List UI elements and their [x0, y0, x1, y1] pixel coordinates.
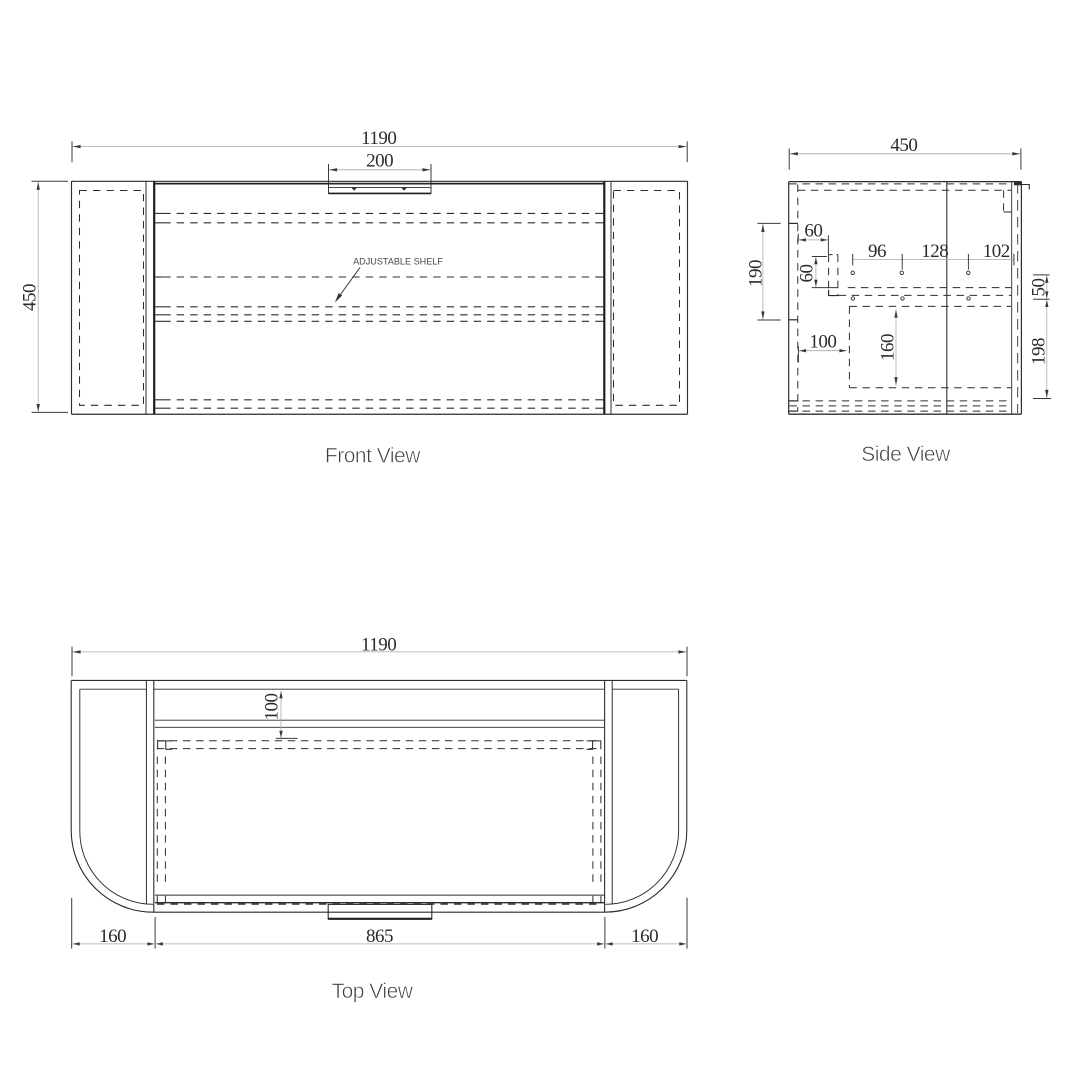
svg-text:450: 450: [19, 284, 40, 311]
svg-text:50: 50: [1028, 279, 1049, 297]
svg-text:Top View: Top View: [332, 980, 414, 1003]
svg-text:450: 450: [890, 135, 917, 156]
svg-text:102: 102: [983, 241, 1010, 262]
svg-text:ADJUSTABLE SHELF: ADJUSTABLE SHELF: [353, 257, 443, 267]
svg-text:Front View: Front View: [325, 444, 421, 467]
svg-text:128: 128: [921, 241, 948, 262]
svg-text:200: 200: [366, 150, 393, 171]
svg-text:160: 160: [631, 926, 658, 947]
svg-text:100: 100: [262, 694, 283, 721]
svg-text:160: 160: [878, 334, 899, 361]
svg-text:60: 60: [804, 221, 822, 242]
svg-text:Side View: Side View: [861, 443, 951, 466]
svg-text:1190: 1190: [361, 128, 396, 149]
svg-text:190: 190: [745, 260, 766, 287]
svg-text:865: 865: [366, 926, 393, 947]
svg-text:96: 96: [868, 241, 886, 262]
svg-text:100: 100: [809, 332, 836, 353]
svg-text:198: 198: [1029, 338, 1050, 365]
svg-text:1190: 1190: [361, 634, 396, 655]
svg-text:60: 60: [797, 265, 818, 283]
svg-text:160: 160: [99, 926, 126, 947]
